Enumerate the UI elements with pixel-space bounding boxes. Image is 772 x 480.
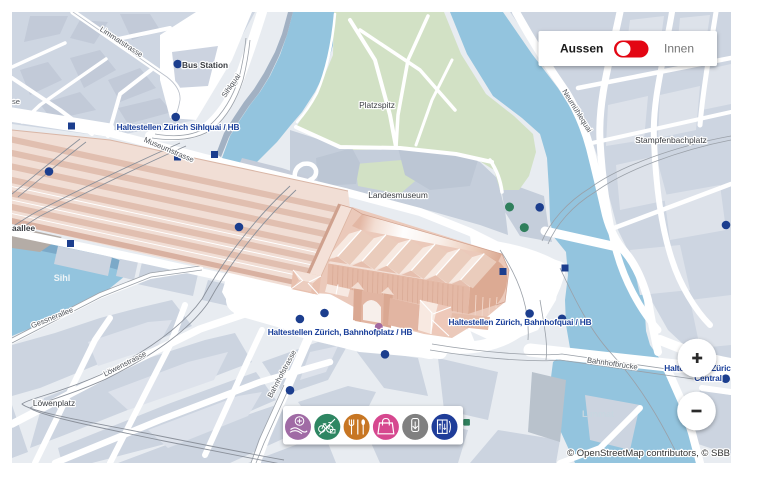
svg-text:Stampfenbachplatz: Stampfenbachplatz <box>635 135 707 145</box>
svg-text:Haltestellen Zürich, Bahnhofpl: Haltestellen Zürich, Bahnhofplatz / HB <box>268 327 413 337</box>
svg-text:aallee: aallee <box>12 223 35 233</box>
svg-text:Haltestellen Zürich Sihlquai /: Haltestellen Zürich Sihlquai / HB <box>117 122 240 132</box>
svg-text:Bus Station: Bus Station <box>182 60 228 70</box>
svg-text:Limmat: Limmat <box>582 409 614 419</box>
svg-text:Landesmuseum: Landesmuseum <box>368 190 428 200</box>
svg-text:Innen: Innen <box>664 42 694 56</box>
svg-text:Sihl: Sihl <box>54 273 71 283</box>
svg-text:Aussen: Aussen <box>560 42 603 56</box>
svg-text:Platzspitz: Platzspitz <box>359 100 395 110</box>
svg-text:© OpenStreetMap contributors,: © OpenStreetMap contributors, © SBB <box>567 448 730 459</box>
svg-text:se: se <box>12 97 20 106</box>
svg-text:Löwenplatz: Löwenplatz <box>33 398 75 408</box>
svg-text:Haltestellen Zürich, Bahnhofqu: Haltestellen Zürich, Bahnhofquai / HB <box>449 317 592 327</box>
